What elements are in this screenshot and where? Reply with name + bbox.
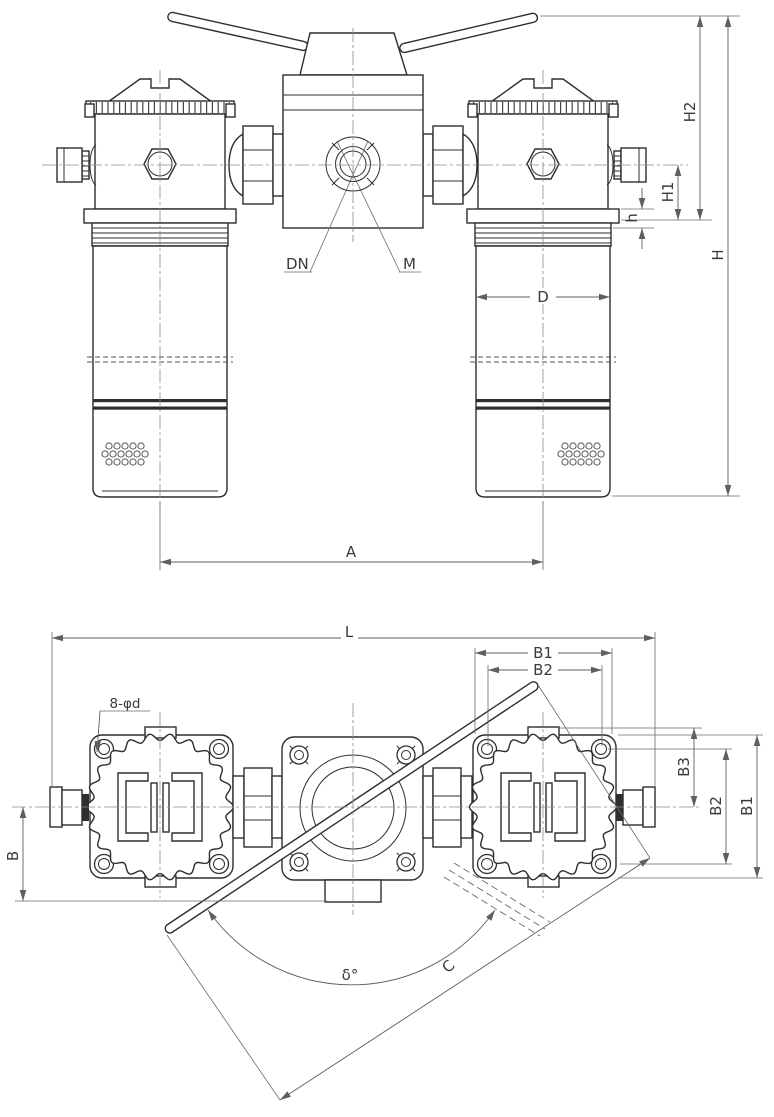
- dim-h1: H1: [659, 182, 677, 203]
- mounting-hole: [592, 855, 611, 874]
- dim-h-small: h: [623, 213, 641, 223]
- bolt-holes-note: 8-φd: [110, 696, 141, 712]
- dim-b2-horizontal: B2: [533, 661, 553, 679]
- cover-bolt: [397, 853, 415, 871]
- dim-b2-vertical: B2: [707, 796, 725, 816]
- front-view: DN M H2 H H1 h D A: [42, 12, 740, 570]
- dim-b1-horizontal: B1: [533, 644, 553, 662]
- cover-bolt: [290, 853, 308, 871]
- handle-hub: [300, 33, 407, 75]
- cover-bolt: [290, 746, 308, 764]
- mounting-hole: [592, 740, 611, 759]
- duplex-filter-technical-drawing: DN M H2 H H1 h D A: [0, 0, 774, 1117]
- mounting-hole: [210, 855, 229, 874]
- left-filter-assembly: [57, 79, 236, 497]
- dim-h: H: [709, 249, 727, 260]
- dim-delta: δ°: [342, 966, 359, 984]
- dim-b1-vertical: B1: [738, 796, 756, 816]
- plan-view: L B1 B2 B3 B2 B1 B 8-φd: [4, 623, 763, 1100]
- right-filter-assembly: [467, 79, 646, 497]
- dn-port-label: DN: [286, 255, 309, 273]
- dim-h2: H2: [681, 102, 699, 123]
- drawing-svg: DN M H2 H H1 h D A: [0, 0, 774, 1117]
- dim-l: L: [345, 623, 354, 641]
- dim-b: B: [4, 851, 22, 861]
- dim-d: D: [537, 288, 549, 306]
- dim-b3: B3: [675, 757, 693, 777]
- angle-left-leg: [167, 935, 280, 1100]
- front-view-dimensions: H2 H H1 h D A: [160, 16, 740, 570]
- right-plan-union-nut: [423, 768, 472, 847]
- mounting-hole: [210, 740, 229, 759]
- left-plan-union-nut: [233, 768, 282, 847]
- m-port-label: M: [403, 255, 416, 273]
- dim-c: C: [438, 956, 458, 976]
- central-valve-plan: [282, 737, 423, 902]
- dim-a: A: [346, 543, 357, 561]
